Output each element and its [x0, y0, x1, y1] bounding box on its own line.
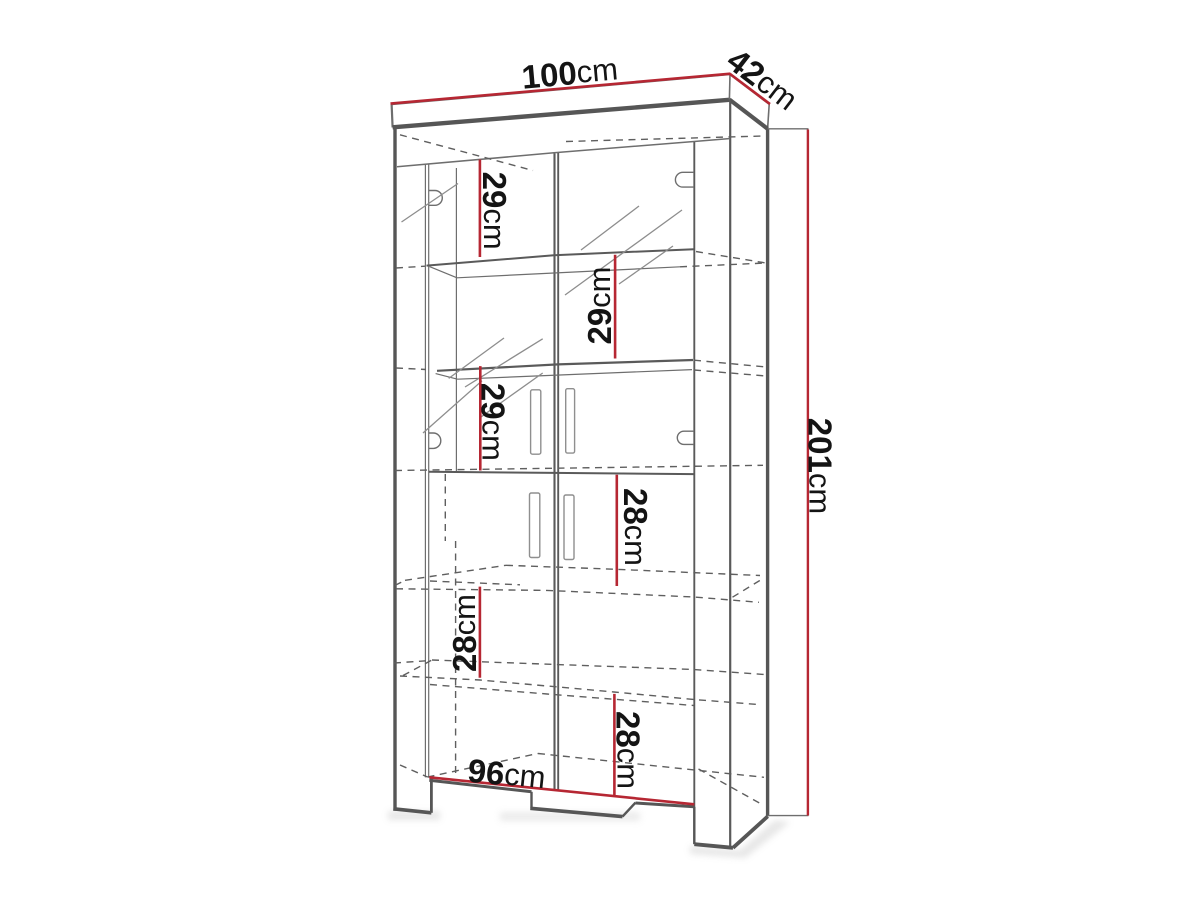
svg-text:29cm: 29cm	[476, 172, 513, 250]
svg-text:29cm: 29cm	[475, 383, 512, 461]
svg-text:201cm: 201cm	[802, 418, 839, 514]
svg-text:28cm: 28cm	[617, 488, 654, 566]
svg-text:28cm: 28cm	[446, 594, 483, 672]
svg-text:28cm: 28cm	[610, 711, 647, 789]
svg-text:29cm: 29cm	[581, 266, 618, 344]
